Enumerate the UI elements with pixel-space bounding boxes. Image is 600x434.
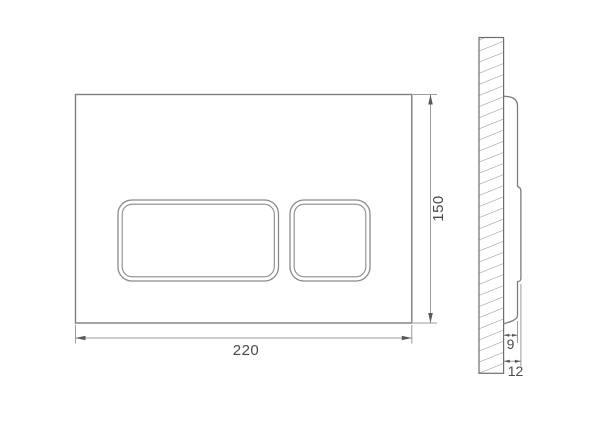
side-view: 9 12 (479, 38, 523, 380)
dimension-height-label: 150 (430, 195, 447, 222)
dimension-width: 220 (76, 325, 412, 359)
dimension-total-depth-label: 12 (508, 363, 524, 379)
dimension-height: 150 (413, 95, 447, 324)
dimension-plate-depth-label: 9 (507, 336, 515, 352)
plate-side-profile (504, 96, 521, 323)
small-flush-button (290, 200, 370, 281)
dimension-plate-depth: 9 (504, 321, 518, 352)
technical-drawing-canvas: 220 150 9 (0, 0, 600, 434)
dimension-width-label: 220 (233, 342, 260, 359)
dimension-total-depth: 12 (504, 284, 524, 379)
front-view: 220 150 (76, 95, 448, 360)
large-flush-button (118, 200, 279, 281)
wall-section (479, 38, 504, 374)
